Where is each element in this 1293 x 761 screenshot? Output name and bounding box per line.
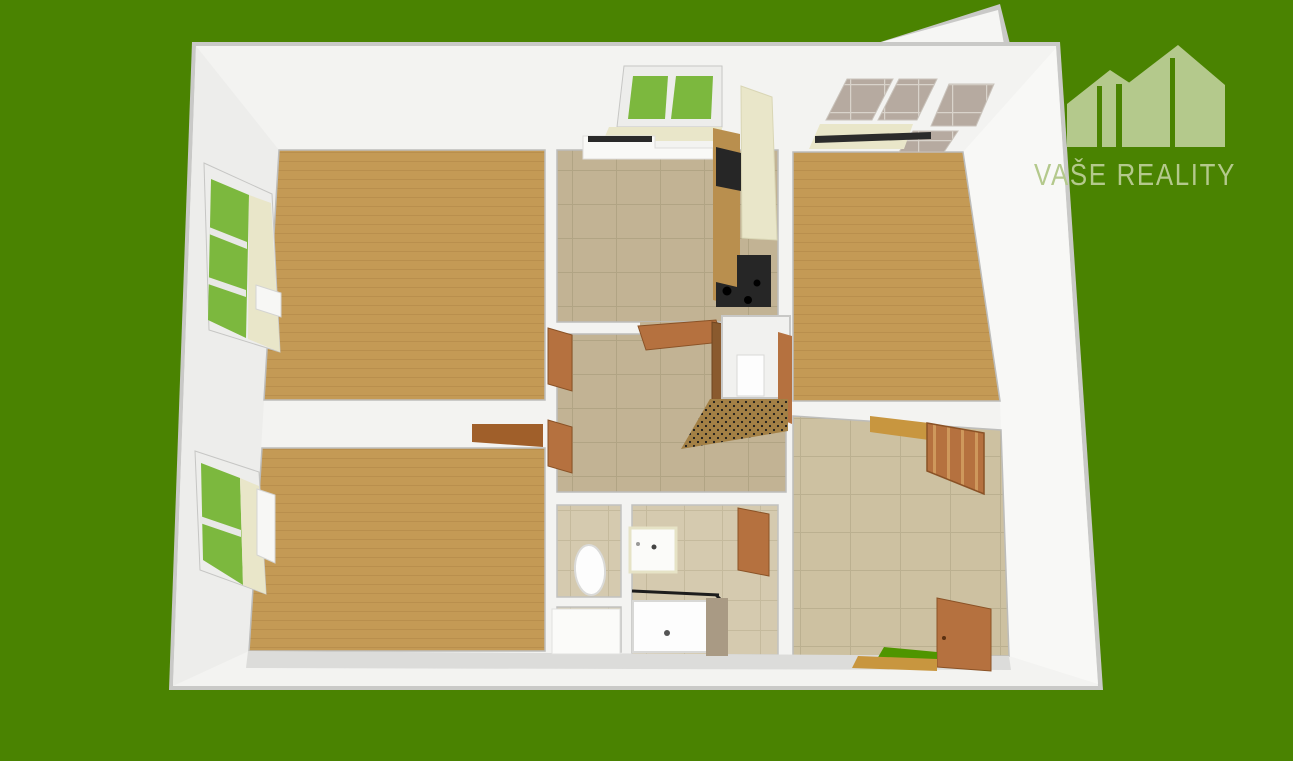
drain	[664, 630, 670, 636]
door-handle	[942, 636, 946, 640]
stove	[737, 255, 771, 307]
living-room-door	[548, 328, 572, 391]
room-door	[937, 598, 991, 671]
bedroom-door	[548, 420, 572, 473]
burner	[754, 280, 761, 287]
washing-machine	[552, 609, 620, 654]
logo-gap	[1170, 58, 1175, 147]
kitchen-window-glass	[628, 76, 668, 119]
bathroom-sink	[630, 528, 676, 572]
faucet	[652, 545, 657, 550]
kitchen-counter-dark-strip	[588, 136, 652, 142]
radiator	[257, 489, 275, 563]
shower-partition	[706, 598, 728, 656]
shower-tray	[633, 601, 707, 652]
soap-dish	[636, 542, 640, 546]
logo-gap	[1116, 84, 1122, 147]
burner	[744, 296, 752, 304]
bathroom-cabinet	[738, 508, 769, 576]
floor-plan-canvas: VAŠE REALITY	[0, 0, 1293, 761]
bedroom2-floor	[793, 152, 1000, 401]
logo-text: VAŠE REALITY	[1034, 157, 1236, 192]
burner	[723, 287, 732, 296]
real-estate-render: VAŠE REALITY	[0, 0, 1293, 761]
kitchen-sink	[716, 147, 741, 191]
entrance-door-panel	[737, 355, 764, 396]
living-room-floor	[264, 150, 545, 400]
bedroom-floor	[249, 448, 545, 651]
kitchen-window-glass	[671, 76, 713, 119]
tall-cabinet	[741, 86, 777, 240]
logo-gap	[1097, 86, 1102, 147]
window-glass	[208, 179, 249, 338]
